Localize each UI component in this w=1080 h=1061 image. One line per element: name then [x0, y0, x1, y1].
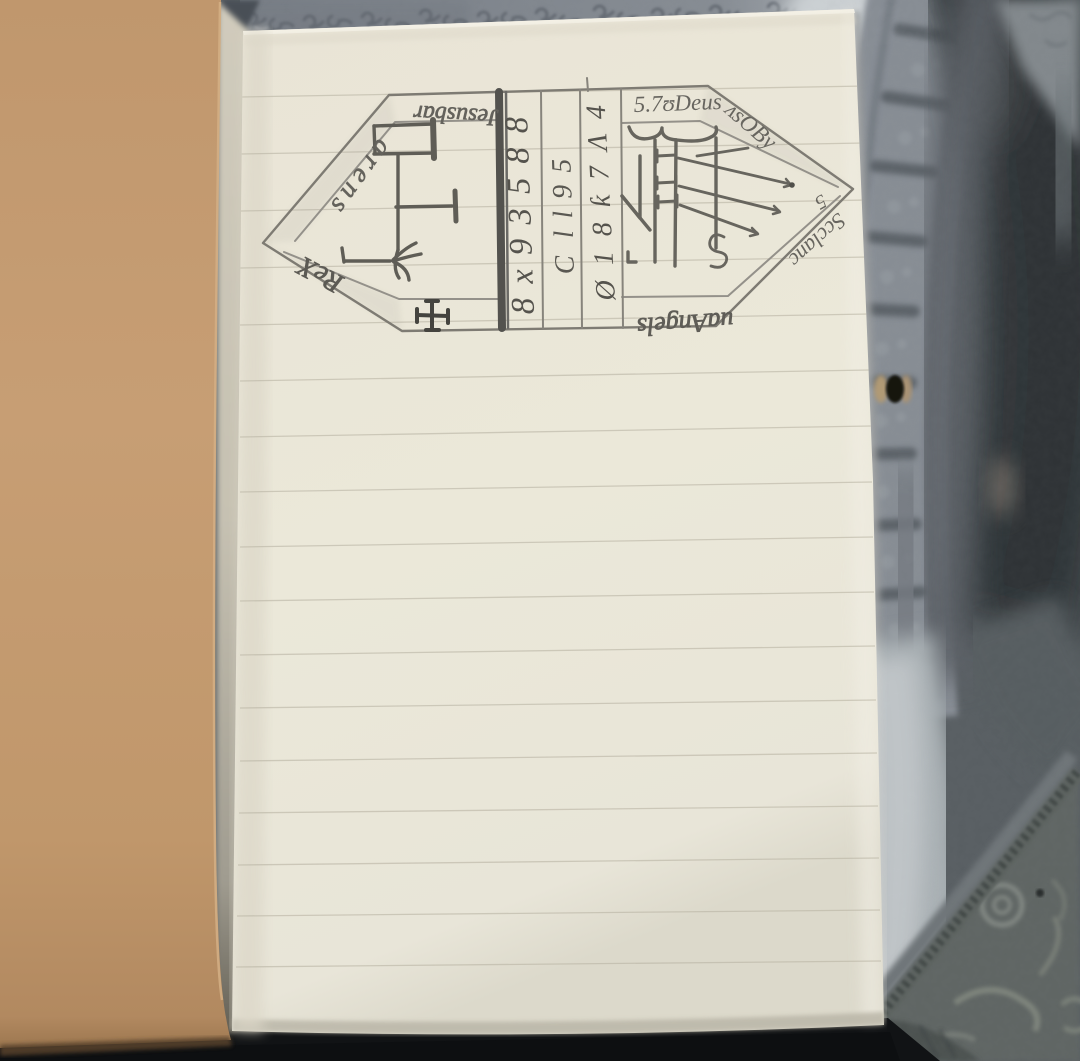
svg-text:5.7ʊDeus: 5.7ʊDeus — [633, 89, 722, 117]
svg-text:Jesusbar: Jesusbar — [412, 100, 499, 130]
svg-text:C: C — [549, 255, 581, 275]
svg-text:ll95: ll95 — [546, 146, 580, 239]
svg-text:8x93588: 8x93588 — [499, 102, 542, 315]
